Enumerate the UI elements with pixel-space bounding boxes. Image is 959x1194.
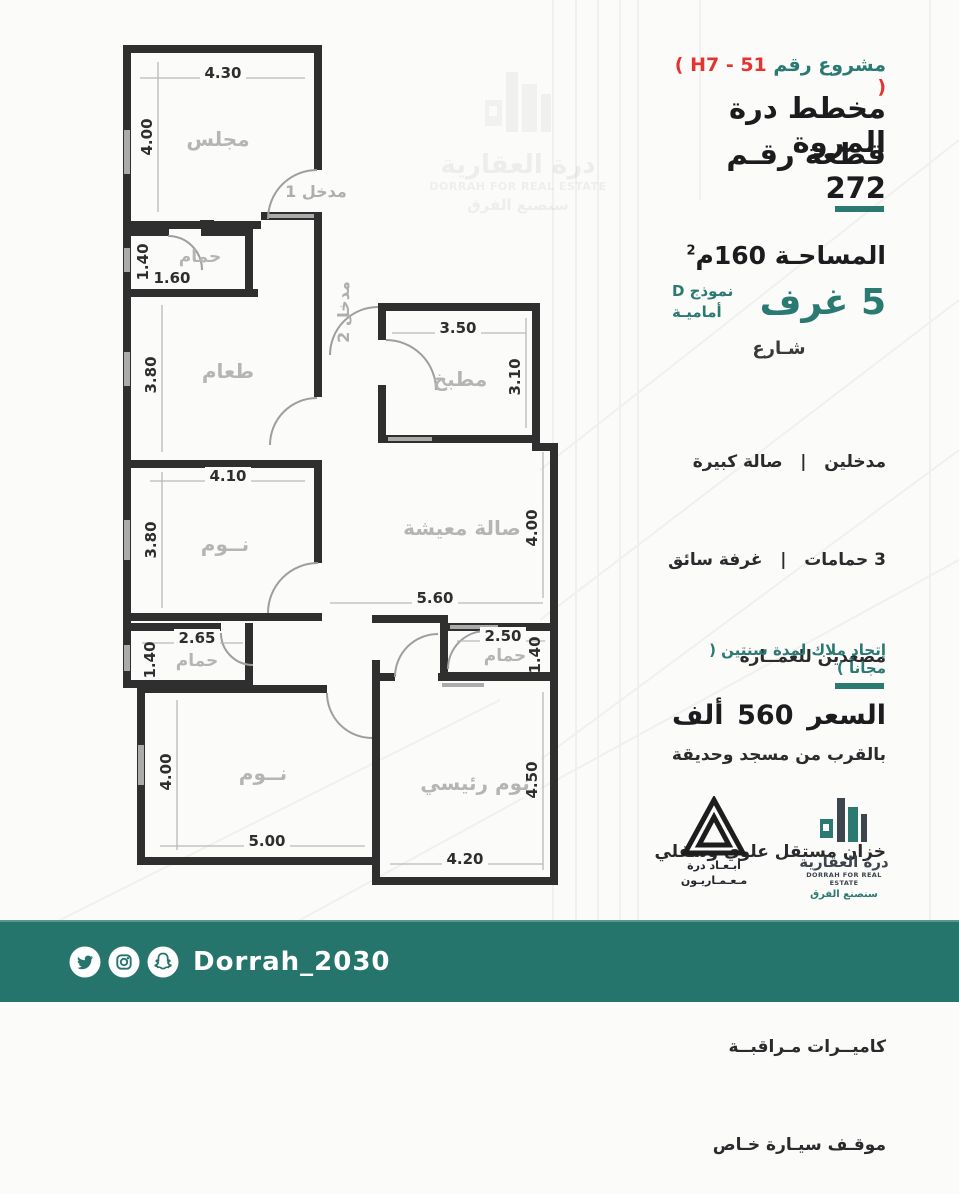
room-label-bedroom-bottom: نــوم <box>239 761 287 785</box>
dim-dining-height: 3.80 <box>142 356 160 393</box>
dorrah-name-en: DORRAH FOR REAL ESTATE <box>798 871 890 887</box>
price-label: السعر <box>807 700 886 731</box>
abaad-triangle-icon <box>681 796 747 858</box>
abaad-name-line1: أبـعـاد درة <box>676 858 752 873</box>
dorrah-name-ar: درة العقارية <box>798 854 890 871</box>
room-label-bath-right: حمام <box>484 646 527 666</box>
project-label: مشروع رقم <box>773 54 886 76</box>
room-label-living: صالة معيشة <box>403 516 521 540</box>
dim-living-width: 5.60 <box>416 589 453 607</box>
dorrah-logo: درة العقارية DORRAH FOR REAL ESTATE سنصن… <box>798 798 890 900</box>
area-line: المساحـة 160م2 <box>672 241 886 270</box>
area-superscript: 2 <box>686 244 695 259</box>
dorrah-buildings-icon <box>816 798 872 854</box>
dim-kitchen-width: 3.50 <box>439 319 476 337</box>
model-line1: نموذج D <box>672 282 733 300</box>
price-row: السعر 560 ألف <box>672 700 886 731</box>
room-label-entrance2: مدخل 2 <box>334 281 353 343</box>
social-handle: Dorrah_2030 <box>193 947 391 977</box>
dim-bath-left-height: 1.40 <box>141 641 159 678</box>
abaad-name-line2: مـعـمـاريـون <box>676 873 752 888</box>
room-label-entrance1: مدخل 1 <box>285 182 347 201</box>
street-label: شـارع <box>672 338 886 359</box>
room-label-kitchen: مطبخ <box>433 367 487 391</box>
dim-bath-right-width: 2.50 <box>484 627 521 645</box>
dim-majlis-height: 4.00 <box>138 118 156 155</box>
dim-bedroom-mid-height: 3.80 <box>142 521 160 558</box>
model-line2: أماميـة <box>672 303 722 321</box>
dim-kitchen-height: 3.10 <box>506 358 524 395</box>
snapchat-icon <box>147 946 179 978</box>
feature-item: مدخلين | صالة كبيرة <box>672 446 886 479</box>
room-label-bath-top: حمام <box>179 247 222 267</box>
room-label-dining: طعام <box>202 359 254 383</box>
area-label: المساحـة 160م <box>696 241 887 270</box>
feature-item: كاميــرات مـراقبــة <box>672 1031 886 1064</box>
dim-bedroom-bottom-width: 5.00 <box>248 832 285 850</box>
footer-bar: Dorrah_2030 <box>0 920 959 1002</box>
dim-bath-top-height: 1.40 <box>134 243 152 280</box>
dim-bath-left-width: 2.65 <box>178 629 215 647</box>
dim-master-width: 4.20 <box>446 850 483 868</box>
room-label-majlis: مجلس <box>186 127 249 151</box>
dim-bath-right-height: 1.40 <box>526 636 544 673</box>
rooms-block: 5 غرف نموذج D أماميـة <box>672 281 886 323</box>
dim-majlis-width: 4.30 <box>204 64 241 82</box>
abaad-logo: أبـعـاد درة مـعـمـاريـون <box>676 796 752 888</box>
divider-bottom <box>835 683 884 689</box>
instagram-icon <box>108 946 140 978</box>
rooms-count: 5 غرف <box>760 282 886 323</box>
dim-bedroom-bottom-height: 4.00 <box>157 753 175 790</box>
owners-union-note: إتحاد ملاك لمدة سنتين ( مجاناً ) <box>672 641 886 677</box>
feature-item: 3 حمامات | غرفة سائق <box>672 544 886 577</box>
dorrah-tagline: سنصنع الفرق <box>798 889 890 900</box>
dim-bath-top-width: 1.60 <box>153 269 190 287</box>
floor-plan: 4.30 4.00 1.40 1.60 3.80 3.50 3.10 4.10 … <box>0 0 640 940</box>
room-label-master: نوم رئيسي <box>420 771 529 796</box>
twitter-icon <box>69 946 101 978</box>
price-unit: ألف <box>672 700 724 731</box>
feature-item: بالقرب من مسجد وحديقة <box>672 739 886 772</box>
divider-top <box>835 206 884 212</box>
room-label-bath-left: حمام <box>176 651 219 671</box>
social-icons <box>69 946 179 978</box>
plan-walls <box>123 45 558 885</box>
room-label-bedroom-mid: نــوم <box>201 532 249 556</box>
dim-living-height: 4.00 <box>523 509 541 546</box>
model-annotation: نموذج D أماميـة <box>672 281 733 323</box>
feature-item: موقـف سيـارة خـاص <box>672 1129 886 1162</box>
plot-number: قطعة رقـم 272 <box>672 137 886 205</box>
dim-bedroom-mid-width: 4.10 <box>209 467 246 485</box>
features-list: مدخلين | صالة كبيرة 3 حمامات | غرفة سائق… <box>672 381 886 1194</box>
price-value: 560 <box>737 700 793 731</box>
